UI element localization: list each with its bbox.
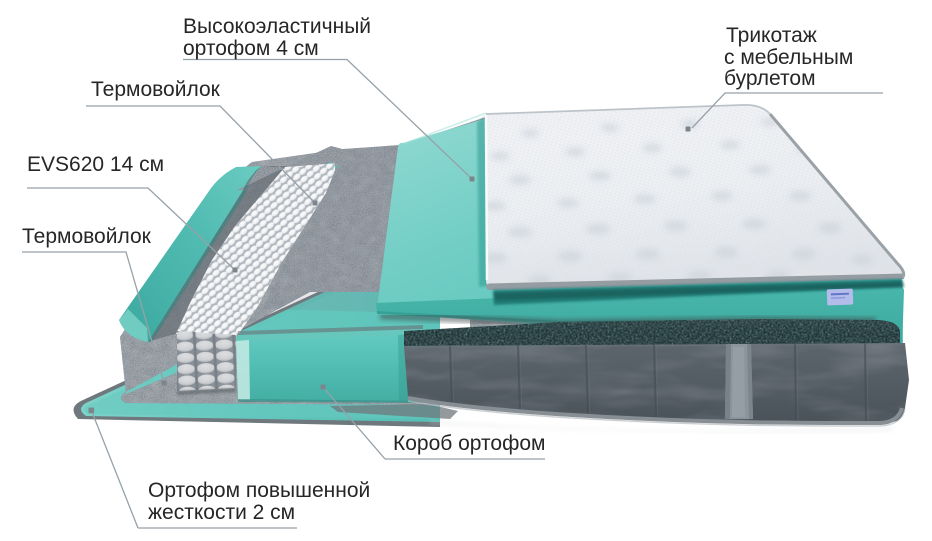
svg-text:с мебельным: с мебельным bbox=[724, 46, 853, 69]
svg-text:Термовойлок: Термовойлок bbox=[22, 225, 152, 248]
svg-text:бурлетом: бурлетом bbox=[724, 67, 816, 90]
svg-text:Ортофом повышенной: Ортофом повышенной bbox=[148, 479, 370, 502]
svg-text:Трикотаж: Трикотаж bbox=[726, 24, 817, 47]
svg-text:Термовойлок: Термовойлок bbox=[91, 78, 221, 101]
svg-text:EVS620 14 см: EVS620 14 см bbox=[27, 153, 164, 176]
svg-text:Высокоэластичный: Высокоэластичный bbox=[183, 15, 371, 38]
svg-text:ортофом 4 см: ортофом 4 см bbox=[183, 37, 319, 60]
svg-text:Короб ортофом: Короб ортофом bbox=[393, 432, 546, 455]
svg-text:жесткости 2 см: жесткости 2 см bbox=[148, 501, 295, 524]
